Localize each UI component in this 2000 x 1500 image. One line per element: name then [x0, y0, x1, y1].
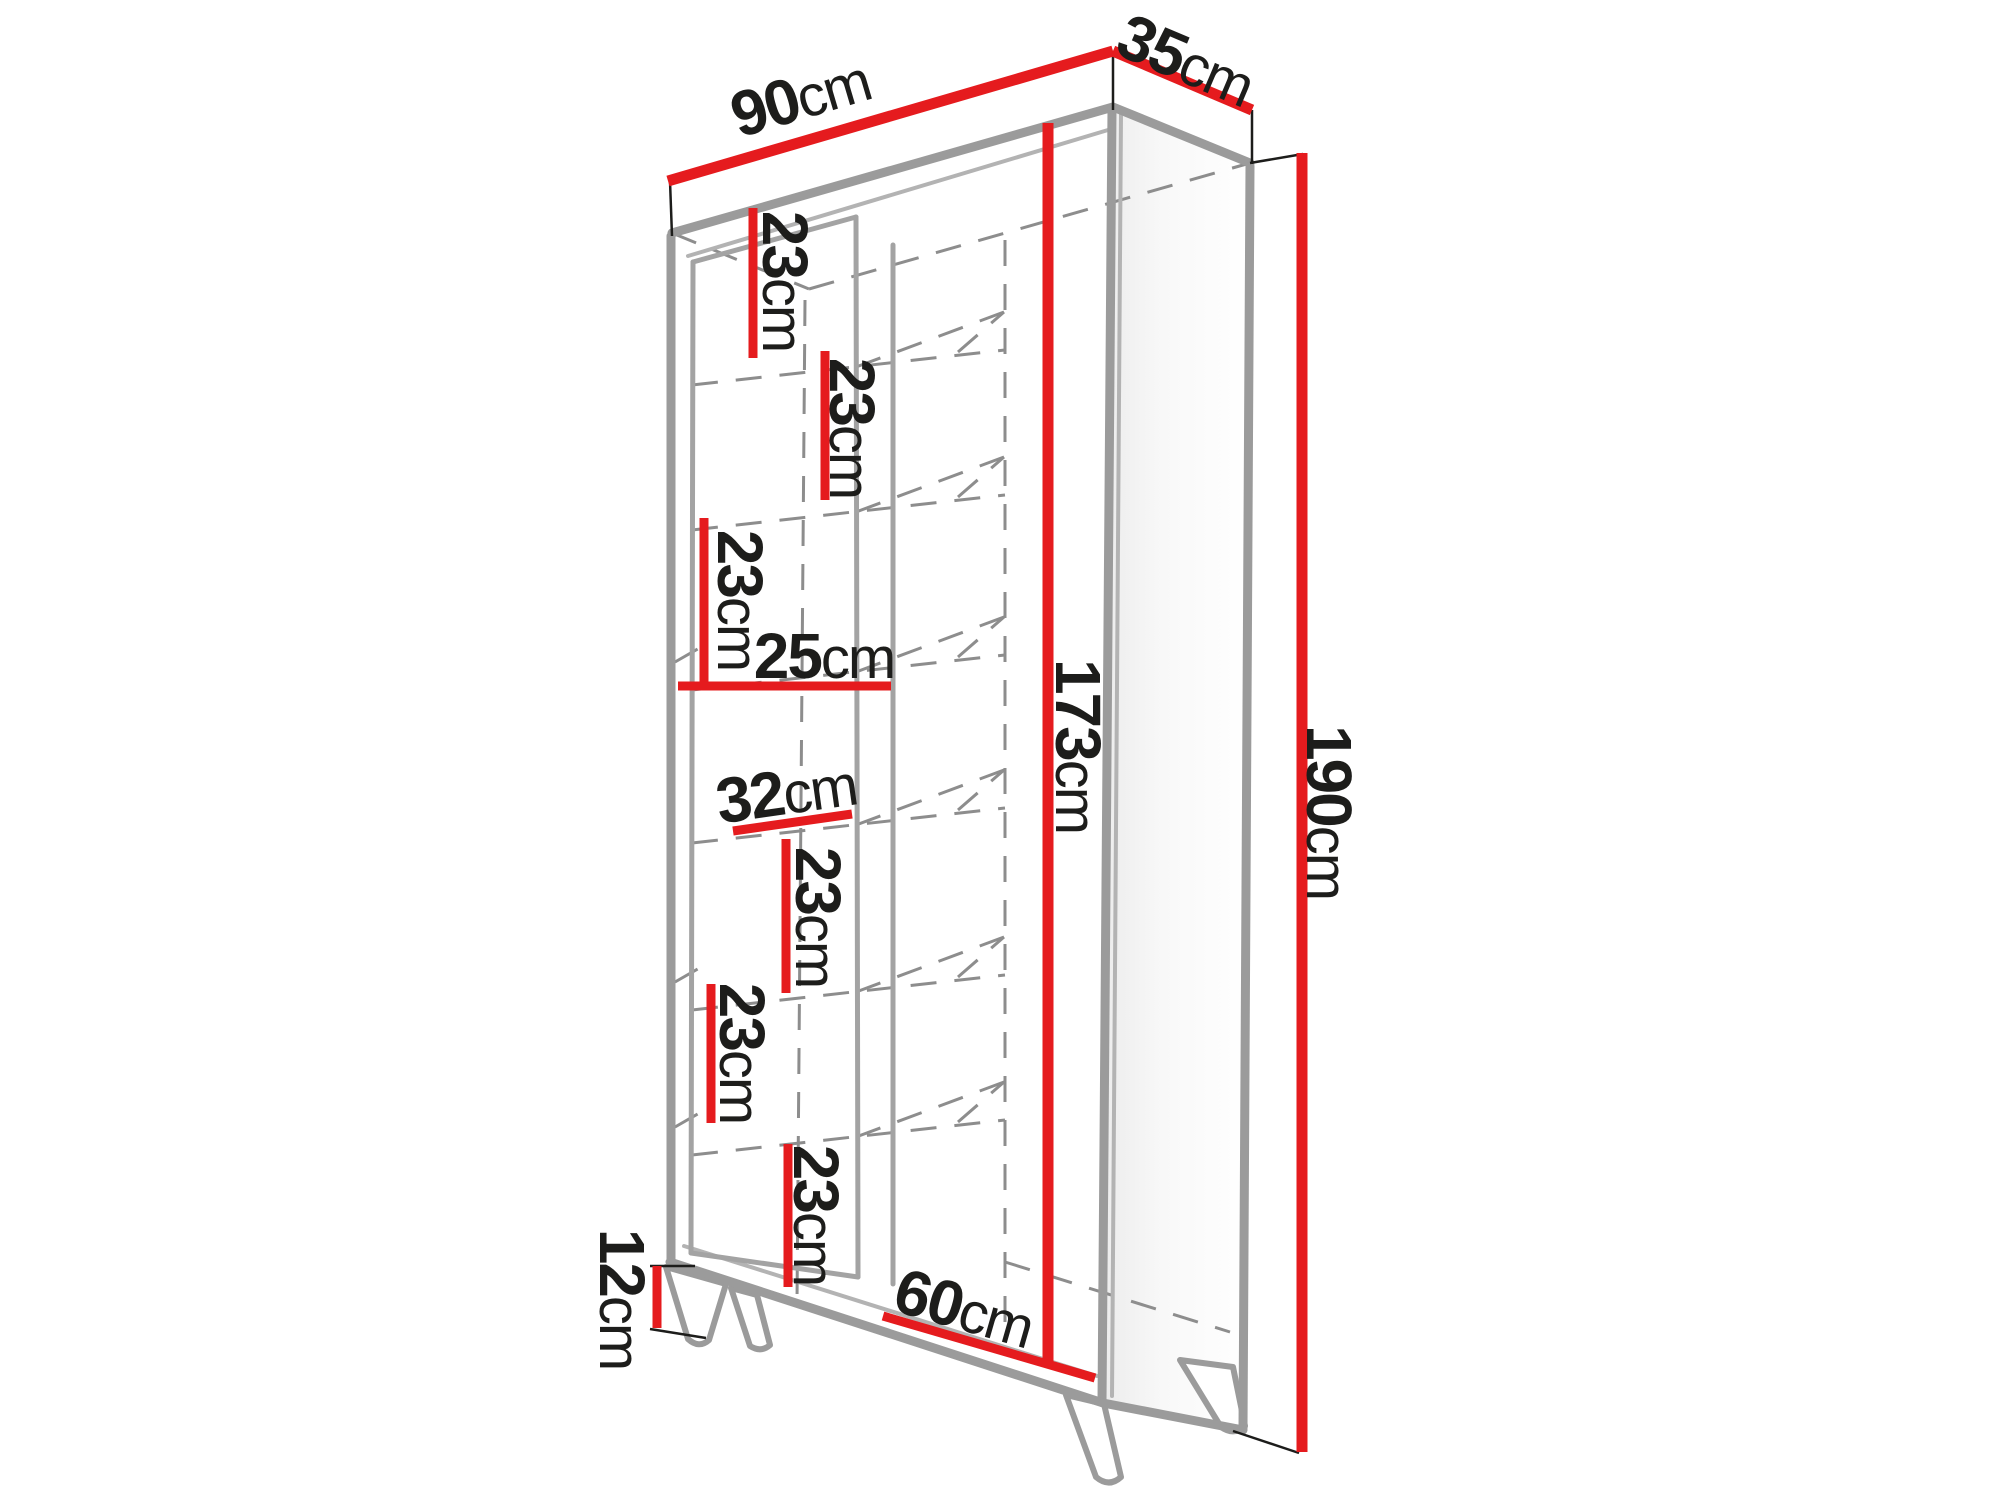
dim-label-shelf-gap-5: 23cm [710, 983, 774, 1124]
dim-label-leg-height: 12cm [590, 1229, 654, 1370]
dim-label-shelf-gap-2: 23cm [820, 357, 884, 498]
dim-label-shelf-width: 25cm [754, 624, 895, 688]
dim-label-overall-height: 190cm [1297, 724, 1361, 898]
dim-label-shelf-gap-4: 23cm [786, 846, 850, 987]
cabinet-line-drawing [0, 0, 2000, 1500]
dimension-diagram: 90cm 35cm 190cm 173cm 23cm 23cm 23cm 25c… [0, 0, 2000, 1500]
door-left-edge [691, 262, 693, 1253]
dim-label-carcass-height: 173cm [1046, 658, 1110, 832]
dim-label-shelf-gap-6: 23cm [784, 1145, 848, 1286]
dim-label-shelf-gap-1: 23cm [753, 210, 817, 351]
